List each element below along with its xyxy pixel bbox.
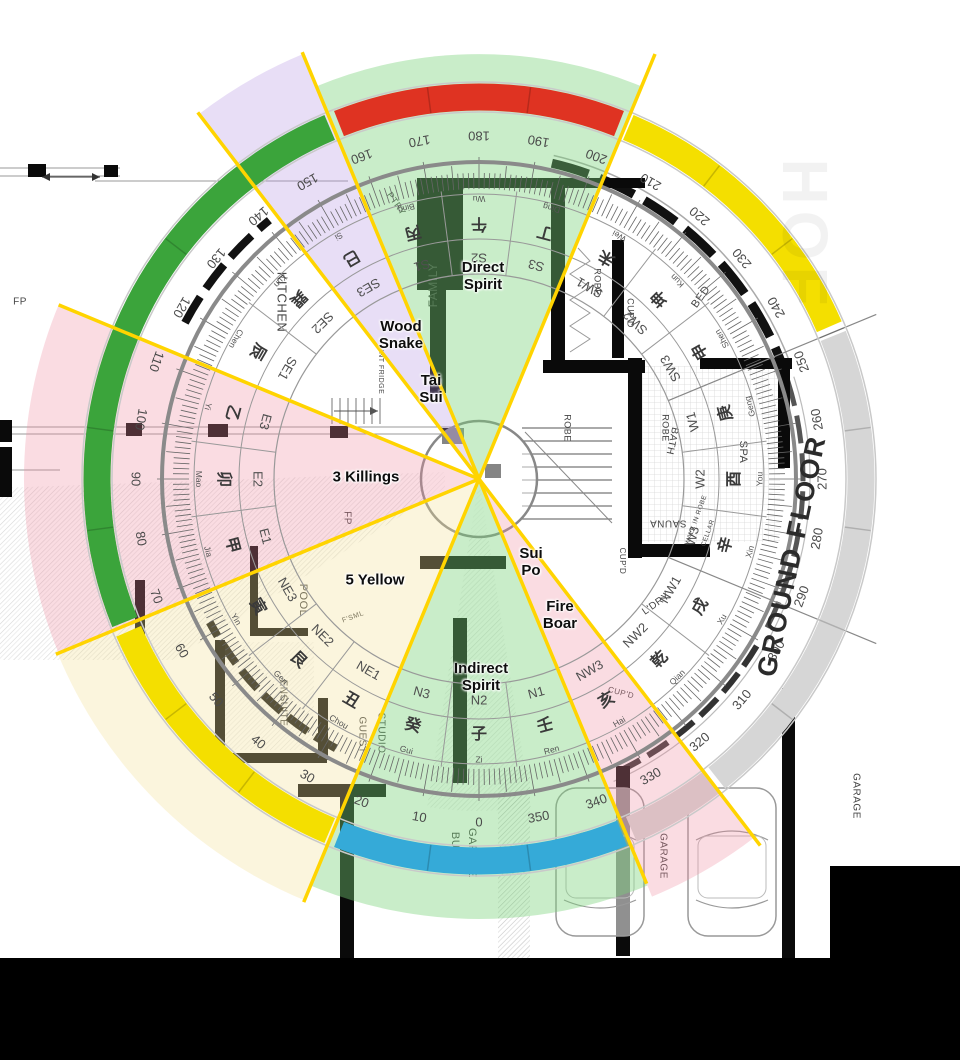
annotation-indirect-spirit: Indirect Spirit <box>454 660 508 694</box>
mountain-pinyin-label: Kun <box>668 272 686 290</box>
door-arrow-head <box>92 173 100 181</box>
feng-shui-floorplan-page: KITCHENPTRYINT FRIDGEFAMILYROBECUP'DBEDR… <box>0 0 960 1060</box>
wall-segment <box>28 164 46 177</box>
ring-sector-label: SE1 <box>275 354 300 383</box>
degree-label: 210 <box>637 170 663 194</box>
stair-arrow-head <box>370 407 378 415</box>
mountain-character: 乾 <box>647 647 672 672</box>
bottom-right-black-mask <box>830 866 960 960</box>
ring-sector-label: W2 <box>692 469 707 489</box>
mountain-pinyin-label: Mao <box>194 471 204 488</box>
wall-segment <box>0 420 12 442</box>
mountain-character: 午 <box>471 215 487 234</box>
degree-label: 250 <box>790 349 812 375</box>
annotation-5-yellow: 5 Yellow <box>346 572 405 589</box>
mountain-character: 辰 <box>246 340 270 363</box>
ring-sector-label: E2 <box>251 471 266 487</box>
room-label: BED <box>689 284 713 311</box>
degree-label: 180 <box>468 129 490 144</box>
room-label: FP <box>13 297 27 308</box>
room-label: GARAGE <box>850 773 861 819</box>
plan-watermark: HOF <box>768 158 842 311</box>
mountain-character: 子 <box>471 725 487 743</box>
room-label: SAUNA <box>650 517 687 528</box>
room-label: ROBE <box>563 414 573 442</box>
mountain-pinyin-label: Zi <box>475 754 482 764</box>
degree-label: 310 <box>729 686 754 712</box>
degree-label: 220 <box>686 204 712 229</box>
degree-label: 10 <box>411 808 428 825</box>
degree-label: 320 <box>686 729 712 754</box>
wall-segment <box>104 165 118 177</box>
annotation-3-killings: 3 Killings <box>333 469 400 486</box>
ring-sector-label: NW1 <box>657 573 684 606</box>
annotation-direct-spirit: Direct Spirit <box>462 259 505 293</box>
degree-label: 230 <box>729 245 754 271</box>
degree-label: 0 <box>475 814 482 829</box>
degree-label: 260 <box>807 407 826 431</box>
degree-label: 80 <box>133 530 150 547</box>
annotation-sui-po: Sui Po <box>519 545 542 579</box>
annotation-fire-boar: Fire Boar <box>543 598 577 632</box>
mountain-pinyin-label: Chen <box>227 328 246 351</box>
wall-segment <box>628 358 642 558</box>
mountain-pinyin-label: You <box>754 472 764 487</box>
room-label: CUP'D <box>618 548 627 575</box>
ring-sector-label: N2 <box>471 692 488 707</box>
mountain-character: 卯 <box>215 471 233 487</box>
mountain-character: 酉 <box>725 471 743 487</box>
wall-segment <box>0 447 12 497</box>
ring-sector-label: SE2 <box>309 309 337 337</box>
annotation-tai-sui: Tai Sui <box>419 372 442 406</box>
mountain-pinyin-label: Shen <box>712 328 731 350</box>
mountain-pinyin-label: Xu <box>715 612 729 626</box>
mountain-pinyin-label: Wu <box>472 194 485 204</box>
annotation-wood-snake: Wood Snake <box>379 318 423 352</box>
bottom-black-mask <box>0 958 960 1060</box>
mountain-pinyin-label: Xin <box>743 544 756 559</box>
mountain-character: 坤 <box>647 286 672 311</box>
degree-label: 90 <box>129 472 144 486</box>
mountain-character: 戌 <box>687 595 711 618</box>
